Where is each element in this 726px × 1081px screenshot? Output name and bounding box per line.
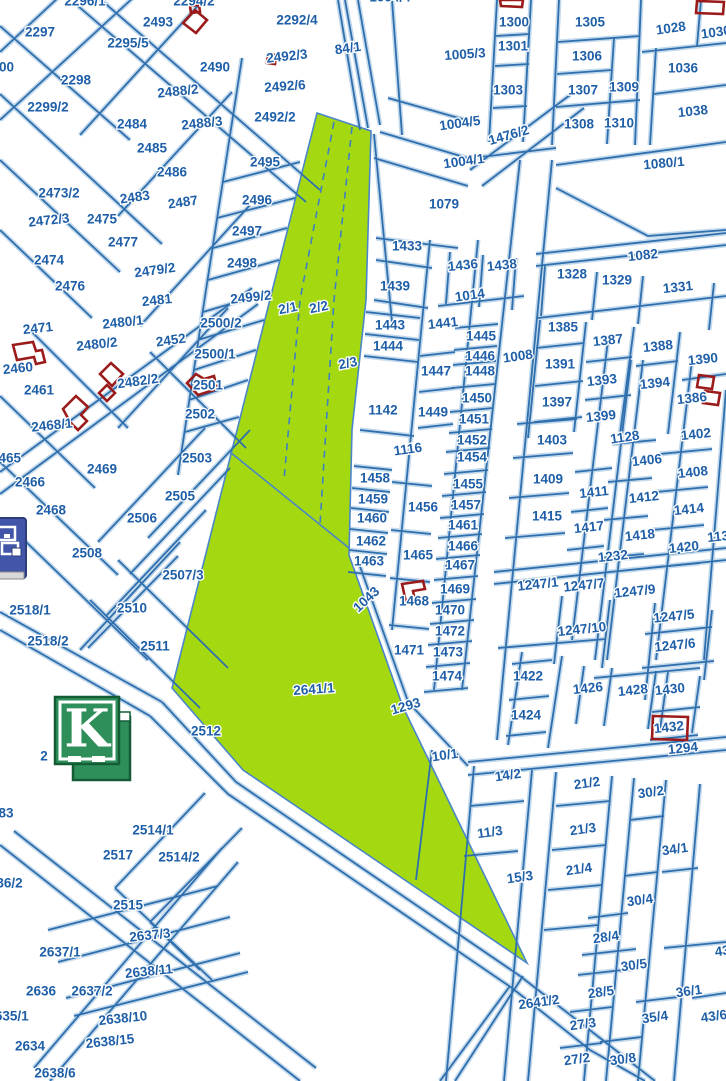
parcel-label: 2637/3 <box>129 925 172 944</box>
logo-letter: K <box>64 699 111 760</box>
parcel-label: 2508 <box>72 546 103 561</box>
parcel-label: 1430 <box>654 680 685 698</box>
parcel-label: 2505 <box>165 489 196 504</box>
parcel-label: 11/3 <box>476 823 504 841</box>
parcel-label: 1303 <box>493 83 524 98</box>
parcel-label: 2635/1 <box>0 1009 29 1024</box>
parcel-label: 2295/5 <box>107 36 149 51</box>
parcel-label: 1441 <box>427 314 459 332</box>
parcel-label: 2487 <box>167 193 199 212</box>
parcel-label: 1028 <box>655 18 687 37</box>
boundary-line <box>489 0 497 142</box>
parcel-label: 10/1 <box>431 746 460 765</box>
parcel-label: 2468/1 <box>31 415 74 434</box>
parcel-label: 1465 <box>403 548 434 563</box>
parcel-label: 1329 <box>602 273 632 288</box>
parcel-label: 1310 <box>604 116 634 131</box>
parcel-label: 2496 <box>242 193 273 208</box>
parcel-label: 2498 <box>227 256 258 271</box>
parcel-label: 2634 <box>15 1039 46 1054</box>
cadastral-map[interactable]: 2296/12294/21004/4229724932295/524902298… <box>0 0 726 1081</box>
parcel-label: 1309 <box>609 80 639 95</box>
parcel-label: 1306 <box>572 49 603 64</box>
parcel-label: 1418 <box>624 526 656 544</box>
parcel-label: 1082 <box>627 246 658 264</box>
parcel-label: 43/5 <box>714 941 726 960</box>
parcel-label: 2495 <box>250 155 281 170</box>
boundary-line <box>358 0 380 125</box>
parcel-label: 1471 <box>394 643 425 658</box>
parcel-label: 2638/6 <box>34 1066 76 1081</box>
parcel-label: 2480/1 <box>102 312 145 331</box>
parcel-label: 2514/2 <box>158 850 199 865</box>
boundary-line <box>374 300 428 308</box>
parcel-label: 2506 <box>127 511 158 526</box>
boundary-line <box>556 188 726 236</box>
map-viewport: 2296/12294/21004/4229724932295/524902298… <box>0 0 726 1081</box>
parcel-label: 1474 <box>432 669 463 684</box>
parcel-label: 1422 <box>513 669 543 684</box>
parcel-label: 30/5 <box>620 956 649 975</box>
parcel-label: 2484 <box>117 117 148 132</box>
parcel-label: 2297 <box>25 25 55 40</box>
parcel-label: 1462 <box>356 534 386 549</box>
boundary-line <box>0 612 162 702</box>
parcel-label: 2500/2 <box>200 316 241 331</box>
parcel-label: 83 <box>0 806 14 821</box>
parcel-label: 2469 <box>87 462 117 477</box>
parcel-label: 2299/2 <box>27 100 68 115</box>
parcel-label: 1247/5 <box>653 606 696 625</box>
parcel-label: 1470 <box>435 603 465 618</box>
parcel-label: 30/4 <box>626 891 655 910</box>
parcel-label: 2465 <box>0 451 22 466</box>
parcel-label: 1036 <box>668 61 699 76</box>
parcel-label: 2486 <box>157 165 188 180</box>
parcel-label: 2 <box>40 749 48 764</box>
parcel-label: 2474 <box>34 253 65 268</box>
boundary-line <box>556 188 726 236</box>
parcel-label: 43/6 <box>700 1007 726 1026</box>
boundary-line <box>92 0 320 190</box>
building-outline-icon <box>697 375 714 389</box>
parcel-label: 2500/1 <box>194 347 236 362</box>
parcel-label: 2515 <box>113 898 144 913</box>
parcel-label: 28/4 <box>592 928 621 947</box>
boundary-line <box>642 43 726 52</box>
parcel-label: 2452 <box>155 331 187 350</box>
parcel-label: 2472/3 <box>28 210 71 229</box>
parcel-label: 1458 <box>360 471 391 486</box>
parcel-label: 35/4 <box>641 1008 670 1027</box>
parcel-label: 1455 <box>453 477 484 492</box>
parcel-label: 2637/2 <box>71 984 112 999</box>
parcel-label: 2300 <box>0 60 14 75</box>
parcel-label: 2492/3 <box>266 46 309 65</box>
parcel-label: 2490 <box>200 60 230 75</box>
boundary-line <box>498 639 606 648</box>
parcel-label: 1008 <box>502 346 534 365</box>
parcel-label: 1459 <box>358 492 388 507</box>
parcel-label: 1116 <box>393 440 424 459</box>
parcel-label: 1469 <box>440 582 470 597</box>
parcel-label: 1460 <box>357 511 387 526</box>
parcel-label: 21/2 <box>573 774 601 793</box>
parcel-label: 1004/4 <box>369 0 411 5</box>
parcel-label: 2296/1 <box>64 0 106 9</box>
parcel-label: 1456 <box>408 500 439 515</box>
parcel-label: 1300 <box>499 15 529 30</box>
parcel-label: 1406 <box>631 451 663 469</box>
boundary-line <box>0 230 92 318</box>
parcel-label: 1385 <box>548 320 579 335</box>
parcel-label: 1439 <box>380 279 410 294</box>
parcel-label: 2476 <box>55 279 86 294</box>
parcel-label: 1394 <box>639 374 671 392</box>
parcel-label: 30/2 <box>637 783 665 802</box>
parcel-label: 2488/3 <box>181 113 224 132</box>
parcel-label: 1457 <box>451 498 481 513</box>
parcel-label: 1467 <box>445 558 475 573</box>
parcel-label: 1451 <box>459 412 490 427</box>
parcel-label: 2292/4 <box>276 13 318 28</box>
parcel-label: 2502 <box>185 407 215 422</box>
parcel-label: 1397 <box>542 395 572 410</box>
parcel-label: 2488/2 <box>157 81 200 100</box>
parcel-label: 2510 <box>117 601 147 616</box>
parcel-label: 2460 <box>2 359 33 377</box>
parcel-label: 1454 <box>457 450 488 465</box>
parcel-label: 1450 <box>462 391 492 406</box>
parcel-label: 2507/3 <box>162 568 204 583</box>
parcel-label: 1448 <box>465 364 496 379</box>
parcel-label: 2503 <box>182 451 213 466</box>
parcel-label: 1390 <box>687 350 718 368</box>
parcel-label: 2475 <box>87 212 118 227</box>
parcel-label: 1408 <box>677 463 709 481</box>
parcel-label: 2641/1 <box>293 680 336 698</box>
parcel-label: 2501 <box>193 378 224 393</box>
parcel-label: 1436 <box>447 256 479 274</box>
parcel-label: 2481 <box>141 291 173 309</box>
parcel-label: 1247/9 <box>614 581 657 600</box>
parcel-label: 1449 <box>418 405 448 420</box>
parcel-label: 1247/6 <box>654 635 697 654</box>
parcel-label: 1247/7 <box>563 575 606 594</box>
parcel-label: 2511 <box>140 639 170 654</box>
window-icon[interactable] <box>0 518 26 579</box>
parcel-label: 1030 <box>700 23 726 42</box>
parcel-label: 1445 <box>466 329 497 344</box>
parcel-label: 1393 <box>586 371 618 389</box>
parcel-label: 1452 <box>457 433 487 448</box>
parcel-label: 1079 <box>429 197 459 212</box>
parcel-label: 1466 <box>448 539 479 554</box>
parcel-label: 2517 <box>103 848 133 863</box>
parcel-label: 2492/2 <box>254 110 295 125</box>
parcel-label: 2294/2 <box>173 0 214 9</box>
parcel-label: 1130 <box>707 527 726 545</box>
parcel-label: 84/1 <box>334 39 363 58</box>
parcel-label: 1247/1 <box>517 574 560 593</box>
parcel-label: 1402 <box>680 425 711 443</box>
parcel-label: 2636 <box>26 984 57 999</box>
parcel-label: 1391 <box>545 357 576 372</box>
parcel-label: 2479/2 <box>133 260 176 281</box>
parcel-label: 1417 <box>573 518 604 536</box>
parcel-label: 1412 <box>628 488 659 506</box>
parcel-label: 21/4 <box>565 860 594 879</box>
parcel-label: 2471 <box>22 319 54 337</box>
parcel-label: 2483 <box>119 187 151 206</box>
parcel-label: 1433 <box>392 239 423 254</box>
boundary-line <box>528 772 556 1081</box>
boundary-line <box>556 142 726 165</box>
parcel-label: 15/3 <box>506 868 535 887</box>
parcel-label: 1472 <box>435 624 465 639</box>
parcel-label: 1294 <box>667 739 699 757</box>
boundary-line <box>497 160 552 740</box>
building-outline-icon <box>500 0 523 7</box>
parcel-label: 1038 <box>677 102 709 120</box>
parcel-label: 1388 <box>642 337 674 355</box>
parcel-label: 2499/2 <box>230 287 273 306</box>
parcel-label: 2485 <box>137 141 168 156</box>
parcel-label: 1307 <box>568 83 598 98</box>
parcel-label: 1308 <box>564 117 595 132</box>
parcel-label: 2493 <box>143 15 174 30</box>
parcel-label: 2497 <box>232 224 262 239</box>
parcel-label: 2468 <box>36 503 67 518</box>
parcel-label: 1432 <box>653 718 684 736</box>
parcel-label: 1331 <box>662 278 694 296</box>
parcel-label: 2637/1 <box>39 945 81 960</box>
parcel-label: 1386 <box>676 389 708 407</box>
parcel-label: 1387 <box>592 331 623 349</box>
parcel-label: 1409 <box>533 472 563 487</box>
boundary-line <box>392 0 402 135</box>
parcel-label: 1411 <box>579 483 610 501</box>
parcel-label: 2518/1 <box>9 603 51 618</box>
parcel-label: 1473 <box>433 645 464 660</box>
boundary-line <box>692 676 700 733</box>
parcel-label: 1399 <box>585 407 616 425</box>
parcel-label: 1463 <box>354 554 385 569</box>
parcel-label: 1301 <box>498 39 529 54</box>
parcel-label: 1426 <box>572 679 604 697</box>
parcel-label: 1005/3 <box>444 45 487 63</box>
parcel-label: 2466 <box>15 475 46 490</box>
parcel-label: 1438 <box>486 256 518 274</box>
boundary-line <box>472 148 556 158</box>
parcel-label: 1420 <box>668 538 699 556</box>
parcel-label: 2473/2 <box>38 186 79 201</box>
cadastre-k-logo: K <box>55 697 130 780</box>
parcel-label: 1142 <box>368 403 397 418</box>
parcel-label: 1468 <box>399 594 430 609</box>
parcel-label: 14/2 <box>494 766 522 785</box>
parcel-label: 1328 <box>557 267 588 282</box>
parcel-label: 1461 <box>448 518 479 533</box>
parcel-label: 1080/1 <box>643 154 686 173</box>
parcel-label: 1305 <box>575 15 606 30</box>
parcel-label: 1447 <box>421 364 451 379</box>
parcel-label: 21/3 <box>569 820 598 839</box>
boundary-line <box>538 296 726 318</box>
boundary-line <box>548 656 562 748</box>
parcel-label: 1414 <box>673 500 705 518</box>
logo-tab <box>119 712 130 721</box>
boundary-line <box>638 780 666 1081</box>
parcel-label: 1428 <box>617 681 649 699</box>
parcel-label: 2512 <box>191 724 221 739</box>
boundary-line <box>674 784 700 1081</box>
parcel-label: 2298 <box>61 73 92 88</box>
parcel-label: 2477 <box>108 235 138 250</box>
parcel-label: 2492/6 <box>264 77 307 95</box>
parcel-label: 1476/2 <box>487 122 531 148</box>
parcel-label: 1415 <box>532 509 563 524</box>
parcel-label: 34/1 <box>661 840 690 859</box>
parcel-label: 2518/2 <box>27 634 68 649</box>
boundary-line <box>654 85 726 94</box>
parcel-label: 1443 <box>375 318 406 333</box>
parcel-label: 1446 <box>465 349 496 364</box>
parcel-label: 2461 <box>24 383 55 398</box>
parcel-label: 2514/1 <box>132 823 174 838</box>
parcel-label: 1232 <box>597 547 628 565</box>
parcel-label: 2638/10 <box>98 1008 148 1028</box>
boundary-line <box>115 793 205 888</box>
parcel-label: 2636/2 <box>0 876 23 891</box>
parcel-label: 1444 <box>373 339 404 354</box>
parcel-label: 1403 <box>537 433 568 448</box>
parcel-label: 2480/2 <box>76 334 119 353</box>
parcel-label: 1424 <box>511 708 542 723</box>
